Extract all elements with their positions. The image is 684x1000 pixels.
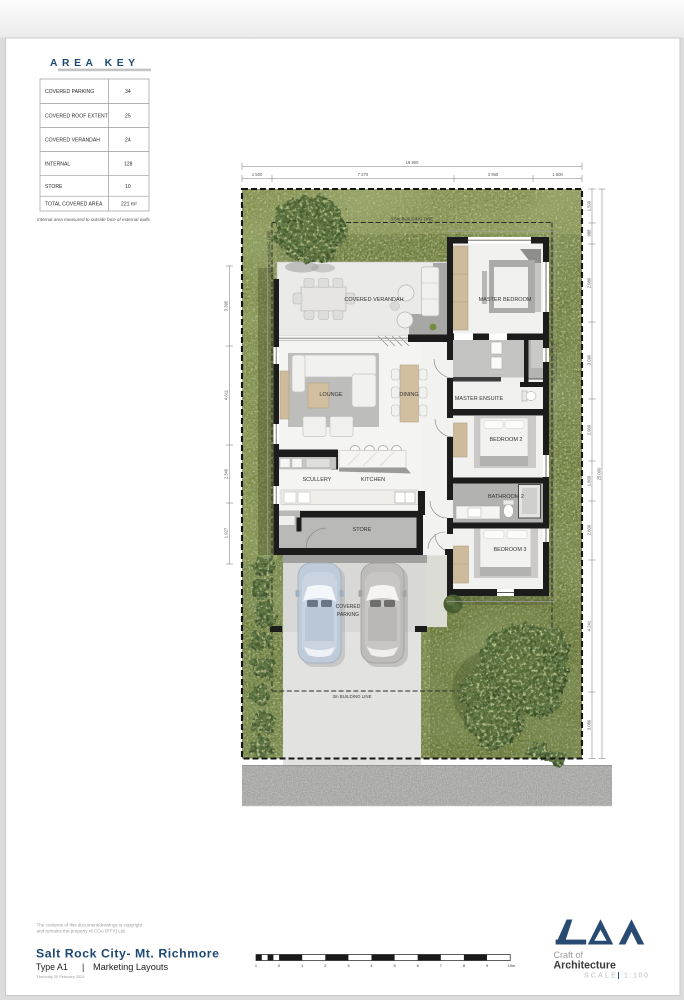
svg-text:Internal area measured to outs: Internal area measured to outside face o… bbox=[37, 217, 151, 222]
svg-text:The contents of this document/: The contents of this document/drawings i… bbox=[37, 923, 143, 928]
svg-text:3: 3 bbox=[347, 963, 349, 968]
svg-text:5: 5 bbox=[394, 963, 396, 968]
svg-text:19 900: 19 900 bbox=[406, 160, 419, 165]
svg-text:34: 34 bbox=[125, 89, 131, 95]
svg-text:1.500: 1.500 bbox=[587, 200, 592, 211]
svg-text:1 500: 1 500 bbox=[552, 172, 563, 177]
svg-text:2.340: 2.340 bbox=[224, 468, 229, 479]
svg-text:KITCHEN: KITCHEN bbox=[361, 477, 385, 483]
svg-text:2: 2 bbox=[324, 963, 326, 968]
svg-text:SCULLERY: SCULLERY bbox=[303, 477, 332, 483]
svg-text:25: 25 bbox=[125, 114, 131, 120]
svg-text:SCALE: SCALE bbox=[584, 973, 618, 980]
svg-text:STORE: STORE bbox=[45, 184, 63, 190]
svg-text:STORE: STORE bbox=[353, 527, 372, 533]
svg-text:7: 7 bbox=[440, 963, 442, 968]
svg-text:Type A1: Type A1 bbox=[36, 962, 68, 972]
svg-text:COVERED: COVERED bbox=[336, 604, 361, 610]
svg-text:AREA KEY: AREA KEY bbox=[50, 58, 140, 69]
svg-text:10: 10 bbox=[125, 184, 131, 190]
svg-text:BEDROOM 3: BEDROOM 3 bbox=[493, 547, 526, 553]
svg-text:3.5m BUILDING LINE: 3.5m BUILDING LINE bbox=[391, 217, 434, 222]
svg-text:MASTER ENSUITE: MASTER ENSUITE bbox=[455, 396, 504, 402]
svg-text:TOTAL COVERED AREA: TOTAL COVERED AREA bbox=[45, 202, 103, 208]
svg-text:128: 128 bbox=[124, 162, 133, 168]
svg-text:3.395: 3.395 bbox=[224, 300, 229, 311]
svg-text:1.800: 1.800 bbox=[587, 475, 592, 486]
svg-text:3.086: 3.086 bbox=[587, 719, 592, 730]
svg-text:2.900: 2.900 bbox=[587, 424, 592, 435]
svg-text:|: | bbox=[82, 962, 84, 972]
svg-text:1:100: 1:100 bbox=[624, 973, 650, 980]
svg-text:COVERED VERANDAH: COVERED VERANDAH bbox=[344, 297, 403, 303]
svg-text:4.241: 4.241 bbox=[587, 620, 592, 631]
svg-text:8: 8 bbox=[463, 963, 465, 968]
svg-text:COVERED ROOF EXTENT: COVERED ROOF EXTENT bbox=[45, 114, 108, 120]
svg-text:1 500: 1 500 bbox=[252, 172, 263, 177]
svg-text:LOUNGE: LOUNGE bbox=[319, 392, 343, 398]
svg-text:4.611: 4.611 bbox=[224, 389, 229, 400]
svg-text:Marketing Layouts: Marketing Layouts bbox=[93, 962, 168, 972]
svg-text:988: 988 bbox=[587, 229, 592, 237]
svg-text:3.090: 3.090 bbox=[587, 354, 592, 365]
svg-text:1: 1 bbox=[301, 963, 303, 968]
svg-text:221 m²: 221 m² bbox=[121, 202, 137, 208]
svg-text:Craft of: Craft of bbox=[554, 950, 584, 960]
svg-text:DINING: DINING bbox=[399, 392, 418, 398]
svg-text:BATHROOM 2: BATHROOM 2 bbox=[488, 494, 524, 500]
svg-text:2.980: 2.980 bbox=[587, 277, 592, 288]
svg-text:Salt Rock City- Mt. Richmore: Salt Rock City- Mt. Richmore bbox=[36, 947, 220, 961]
svg-text:and remains the property of CO: and remains the property of COA (PTY) Lt… bbox=[37, 929, 126, 934]
svg-text:2.800: 2.800 bbox=[587, 524, 592, 535]
svg-text:BEDROOM 2: BEDROOM 2 bbox=[489, 437, 522, 443]
svg-text:1: 1 bbox=[255, 963, 257, 968]
svg-text:INTERNAL: INTERNAL bbox=[45, 162, 70, 168]
svg-text:MASTER BEDROOM: MASTER BEDROOM bbox=[479, 297, 532, 303]
svg-text:PARKING: PARKING bbox=[337, 612, 359, 618]
svg-text:24: 24 bbox=[125, 138, 131, 144]
svg-text:3 950: 3 950 bbox=[488, 172, 499, 177]
svg-text:1.927: 1.927 bbox=[224, 527, 229, 538]
svg-text:7 270: 7 270 bbox=[358, 172, 369, 177]
svg-text:COVERED VERANDAH: COVERED VERANDAH bbox=[45, 138, 100, 144]
svg-text:Thursday 20 February 2025: Thursday 20 February 2025 bbox=[37, 974, 85, 979]
svg-text:|: | bbox=[618, 971, 620, 980]
svg-text:Architecture: Architecture bbox=[554, 960, 617, 972]
svg-text:COVERED PARKING: COVERED PARKING bbox=[45, 89, 94, 95]
svg-text:3m BUILDING LINE: 3m BUILDING LINE bbox=[332, 694, 371, 699]
svg-text:6: 6 bbox=[417, 963, 419, 968]
svg-text:9: 9 bbox=[486, 963, 488, 968]
svg-text:25.000: 25.000 bbox=[597, 467, 602, 480]
svg-text:10m: 10m bbox=[508, 963, 516, 968]
